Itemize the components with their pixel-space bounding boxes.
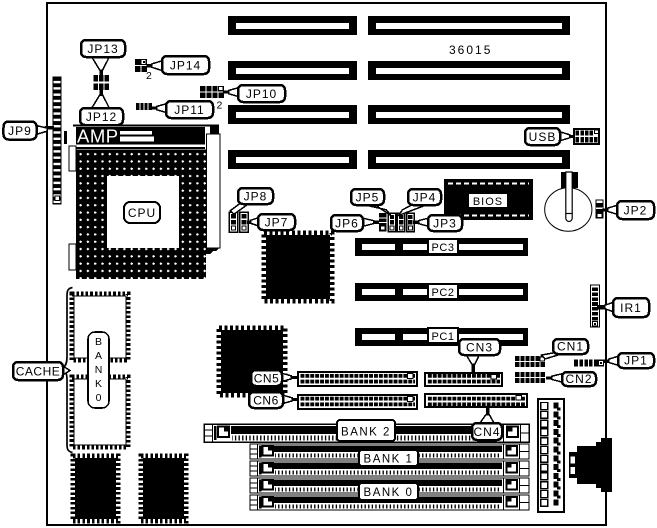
svg-text:JP7: JP7 [265,216,289,230]
svg-text:JP3: JP3 [433,217,457,231]
svg-text:JP10: JP10 [246,87,277,101]
svg-text:B: B [95,336,102,348]
svg-text:USB: USB [529,130,557,144]
svg-text:CN4: CN4 [473,425,500,439]
svg-text:JP13: JP13 [87,42,118,56]
svg-text:JP6: JP6 [335,217,359,231]
svg-text:JP5: JP5 [356,191,380,205]
svg-text:JP2: JP2 [624,204,648,218]
svg-text:CN3: CN3 [466,341,493,355]
svg-text:JP12: JP12 [86,110,117,124]
svg-text:CN1: CN1 [557,340,584,354]
svg-text:JP1: JP1 [624,354,648,368]
svg-text:PC3: PC3 [432,242,455,254]
svg-text:2: 2 [217,100,223,112]
svg-text:JP11: JP11 [174,103,204,117]
svg-text:JP4: JP4 [413,191,437,205]
svg-text:36015: 36015 [449,43,492,57]
svg-text:IR1: IR1 [620,301,642,315]
svg-text:CACHE: CACHE [16,365,61,379]
svg-text:JP14: JP14 [170,59,201,73]
svg-text:BIOS: BIOS [473,196,503,208]
svg-text:CN6: CN6 [253,394,279,408]
svg-text:BANK 1: BANK 1 [364,454,414,466]
svg-text:BANK 2: BANK 2 [341,427,391,439]
svg-text:CPU: CPU [128,206,156,220]
svg-text:CN5: CN5 [254,372,280,386]
svg-text:CN2: CN2 [565,372,592,386]
svg-text:PC2: PC2 [432,287,455,299]
svg-text:N: N [95,364,103,376]
svg-text:BANK 0: BANK 0 [364,487,414,499]
svg-text:2: 2 [146,70,152,82]
svg-text:AMP: AMP [77,126,119,147]
svg-text:A: A [95,350,102,362]
svg-text:0: 0 [96,392,102,404]
svg-text:JP9: JP9 [8,124,32,138]
svg-text:K: K [95,378,102,390]
svg-text:JP8: JP8 [244,190,268,204]
svg-text:PC1: PC1 [432,331,455,343]
